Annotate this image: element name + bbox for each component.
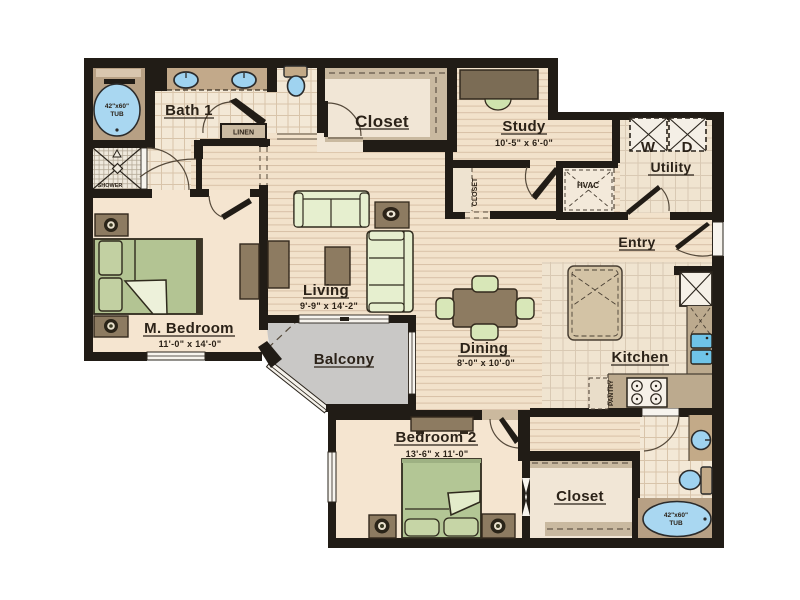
svg-text:CLOSET: CLOSET xyxy=(472,177,479,206)
svg-text:42"x60": 42"x60" xyxy=(105,103,129,110)
svg-text:8'-0" x 10'-0": 8'-0" x 10'-0" xyxy=(457,358,515,368)
svg-text:Balcony: Balcony xyxy=(314,351,375,368)
svg-text:LINEN: LINEN xyxy=(233,130,254,137)
svg-text:10'-5" x 6'-0": 10'-5" x 6'-0" xyxy=(495,138,553,148)
svg-text:Bath 1: Bath 1 xyxy=(165,102,213,119)
svg-text:Living: Living xyxy=(303,282,349,299)
svg-text:11'-0" x 14'-0": 11'-0" x 14'-0" xyxy=(159,339,222,349)
svg-text:13'-6" x 11'-0": 13'-6" x 11'-0" xyxy=(406,449,469,459)
svg-text:Utility: Utility xyxy=(651,159,692,175)
svg-text:Study: Study xyxy=(502,118,546,135)
svg-text:Dining: Dining xyxy=(460,340,508,357)
svg-text:M. Bedroom: M. Bedroom xyxy=(144,320,234,337)
svg-text:Closet: Closet xyxy=(556,488,604,505)
svg-text:9'-9" x 14'-2": 9'-9" x 14'-2" xyxy=(300,301,358,311)
svg-text:TUB: TUB xyxy=(669,520,683,527)
svg-text:42"x60": 42"x60" xyxy=(664,512,688,519)
svg-text:D: D xyxy=(682,139,693,156)
svg-text:W: W xyxy=(641,139,656,156)
svg-text:TUB: TUB xyxy=(110,111,124,118)
svg-text:HVAC: HVAC xyxy=(577,181,599,190)
svg-text:PANTRY: PANTRY xyxy=(608,379,615,406)
svg-text:Closet: Closet xyxy=(355,112,409,131)
svg-text:Bedroom 2: Bedroom 2 xyxy=(395,429,476,446)
svg-text:Kitchen: Kitchen xyxy=(611,349,668,366)
svg-text:SHOWER: SHOWER xyxy=(98,183,123,189)
svg-text:Entry: Entry xyxy=(618,234,655,250)
